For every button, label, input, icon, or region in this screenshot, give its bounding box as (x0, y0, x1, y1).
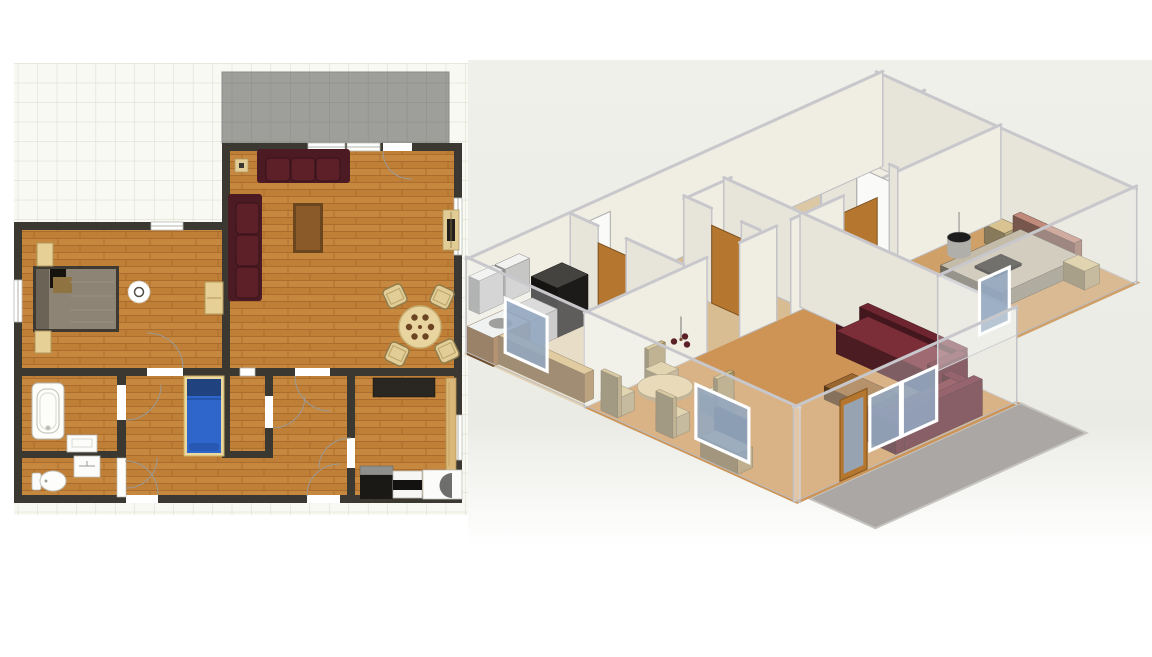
bedroom-lamp-3d-top (947, 232, 971, 243)
chandelier-shade (671, 338, 677, 344)
wall-3d (740, 226, 777, 338)
glass-door-glass-3d (844, 397, 864, 474)
chandelier-shade (679, 338, 682, 341)
view-3d[interactable] (0, 0, 1152, 657)
floor-plan-app-canvas: { "colors": { "wall": "#3a3831", "grid_b… (0, 0, 1152, 657)
chandelier-shade (682, 333, 688, 339)
door-closet (712, 225, 742, 316)
wall-3d (889, 164, 897, 263)
chandelier-shade (684, 341, 690, 347)
window-3d (870, 383, 901, 451)
